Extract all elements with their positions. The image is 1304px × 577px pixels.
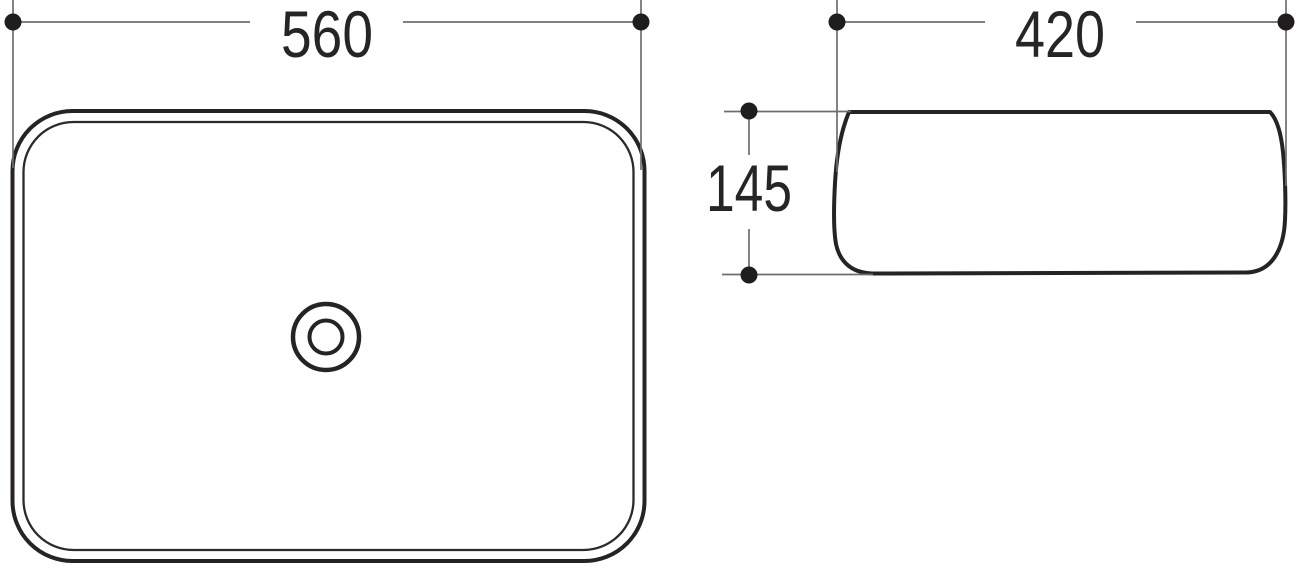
basin-profile-outline	[834, 112, 1285, 274]
dim-560-endpoint-dot-right	[633, 14, 650, 31]
drain-hole-inner-circle	[310, 321, 343, 354]
basin-outer-rim-outline	[13, 111, 645, 561]
basin-inner-rim-outline	[24, 122, 634, 550]
dim-560-label: 560	[281, 0, 373, 71]
technical-drawing-page: 560 420 145	[0, 0, 1304, 577]
top-view	[13, 111, 645, 561]
dim-420-endpoint-dot-right	[1278, 14, 1295, 31]
dim-560-endpoint-dot-left	[5, 14, 22, 31]
dimension-560: 560	[5, 0, 650, 170]
dimension-420: 420	[829, 0, 1295, 186]
drain-hole-outer-circle	[293, 304, 359, 370]
dim-145-label: 145	[706, 151, 792, 225]
dimension-145: 145	[706, 103, 873, 284]
dim-145-endpoint-dot-bottom	[741, 267, 758, 284]
side-view	[834, 112, 1285, 274]
dim-420-endpoint-dot-left	[829, 14, 846, 31]
dim-420-label: 420	[1015, 0, 1105, 71]
dim-145-endpoint-dot-top	[741, 103, 758, 120]
basin-dimension-drawing: 560 420 145	[0, 0, 1304, 577]
